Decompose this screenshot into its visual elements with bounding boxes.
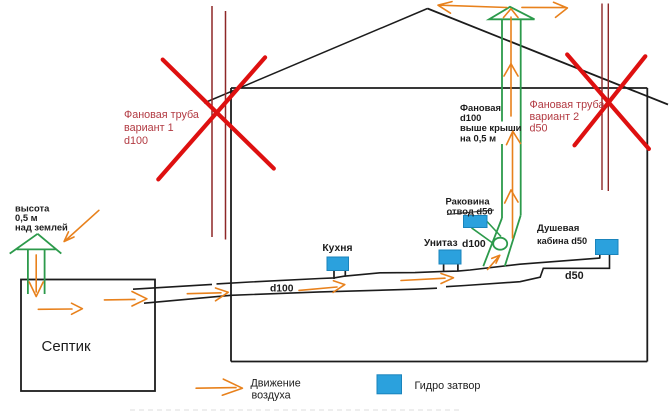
svg-text:на 0,5 м: на 0,5 м <box>460 133 496 144</box>
svg-text:вариант 2: вариант 2 <box>530 111 580 123</box>
svg-text:воздуха: воздуха <box>252 390 291 402</box>
svg-text:Септик: Септик <box>42 338 92 355</box>
svg-text:Фановая труба: Фановая труба <box>124 109 199 121</box>
svg-text:вариант 1: вариант 1 <box>124 122 174 134</box>
svg-text:d50: d50 <box>530 123 548 135</box>
svg-text:d50: d50 <box>565 270 584 282</box>
svg-text:Душевая: Душевая <box>537 223 579 234</box>
svg-text:кабина d50: кабина d50 <box>537 236 587 246</box>
svg-text:d100: d100 <box>124 135 148 147</box>
svg-text:Унитаз: Унитаз <box>424 238 458 249</box>
svg-text:d100: d100 <box>462 239 486 250</box>
svg-text:Кухня: Кухня <box>322 243 352 254</box>
svg-text:Движение: Движение <box>251 378 301 390</box>
svg-text:над землей: над землей <box>15 222 68 233</box>
svg-text:Фановая труба: Фановая труба <box>530 99 605 111</box>
svg-text:d100: d100 <box>270 284 294 295</box>
svg-text:Гидро затвор: Гидро затвор <box>415 380 481 392</box>
